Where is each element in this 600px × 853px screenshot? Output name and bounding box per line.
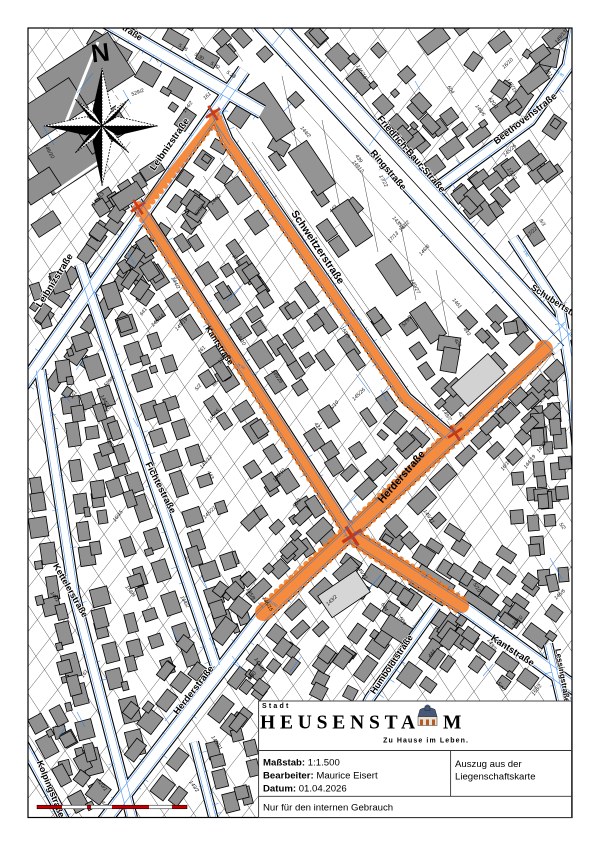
- svg-text:Liegenschaftskarte: Liegenschaftskarte: [455, 772, 536, 783]
- svg-text:HEUSENSTA: HEUSENSTA: [260, 713, 420, 734]
- svg-text:Nur für den internen Gebrauch: Nur für den internen Gebrauch: [263, 803, 393, 814]
- svg-text:N: N: [90, 38, 112, 68]
- svg-text:Datum: 01.04.2026: Datum: 01.04.2026: [263, 784, 347, 795]
- svg-text:M: M: [443, 713, 461, 734]
- svg-text:Zu Hause im Leben.: Zu Hause im Leben.: [383, 738, 469, 745]
- svg-text:Maßstab: 1:1.500: Maßstab: 1:1.500: [263, 758, 340, 769]
- svg-text:Auszug aus der: Auszug aus der: [455, 759, 522, 770]
- svg-text:Bearbeiter: Maurice Eisert: Bearbeiter: Maurice Eisert: [263, 771, 378, 782]
- svg-text:Stadt: Stadt: [262, 703, 291, 710]
